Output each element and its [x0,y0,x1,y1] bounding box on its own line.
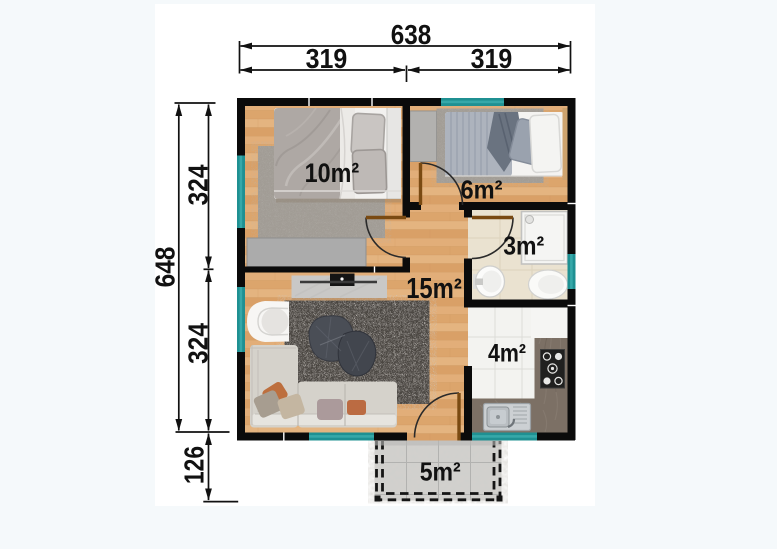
svg-text:638: 638 [391,19,432,50]
svg-text:319: 319 [306,43,348,74]
svg-text:324: 324 [182,164,213,206]
svg-text:324: 324 [182,322,213,364]
svg-text:3m²: 3m² [503,231,544,261]
svg-text:4m²: 4m² [488,340,526,368]
svg-text:5m²: 5m² [420,457,461,487]
svg-text:648: 648 [149,247,180,288]
svg-text:15m²: 15m² [406,273,462,305]
svg-text:10m²: 10m² [305,158,360,188]
svg-text:6m²: 6m² [461,175,503,205]
svg-text:319: 319 [471,43,513,74]
svg-text:126: 126 [178,446,209,484]
